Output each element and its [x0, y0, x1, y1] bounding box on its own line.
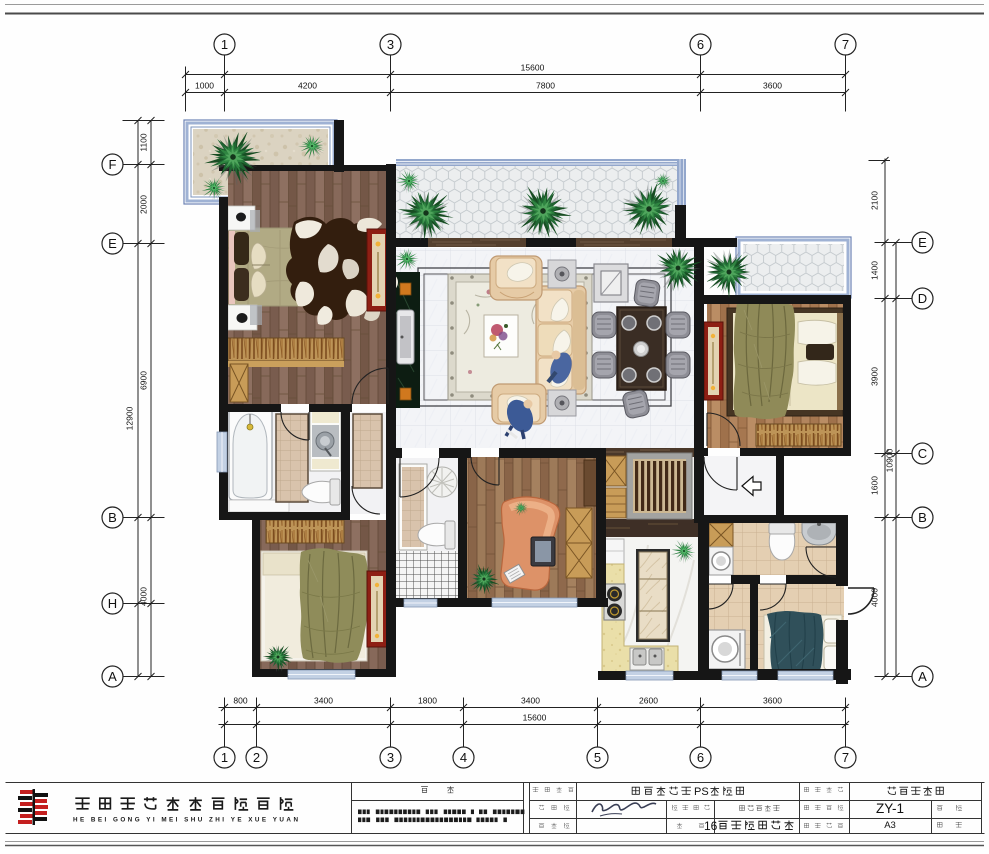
svg-text:800: 800 [233, 696, 247, 706]
svg-text:1600: 1600 [870, 476, 880, 495]
svg-text:6: 6 [697, 750, 704, 765]
svg-text:3400: 3400 [521, 696, 540, 706]
svg-text:3900: 3900 [870, 367, 880, 386]
svg-text:3600: 3600 [763, 81, 782, 91]
svg-text:15600: 15600 [521, 63, 545, 73]
svg-text:1100: 1100 [139, 133, 149, 152]
svg-text:2000: 2000 [139, 195, 149, 214]
svg-text:1000: 1000 [195, 81, 214, 91]
svg-text:ZY-1: ZY-1 [876, 801, 904, 816]
svg-text:A3: A3 [884, 820, 896, 831]
svg-text:PS: PS [694, 786, 709, 798]
svg-text:3: 3 [387, 750, 394, 765]
svg-text:5: 5 [594, 750, 601, 765]
svg-text:3: 3 [387, 37, 394, 52]
svg-text:2100: 2100 [870, 191, 880, 210]
svg-text:1400: 1400 [870, 261, 880, 280]
svg-text:E: E [918, 235, 927, 250]
svg-text:3400: 3400 [314, 696, 333, 706]
svg-text:2600: 2600 [639, 696, 658, 706]
svg-text:7: 7 [842, 37, 849, 52]
svg-text:6: 6 [697, 37, 704, 52]
svg-text:4: 4 [460, 750, 467, 765]
svg-text:16: 16 [704, 819, 718, 833]
svg-text:6900: 6900 [139, 371, 149, 390]
svg-text:A: A [108, 669, 117, 684]
svg-text:3600: 3600 [763, 696, 782, 706]
svg-text:1800: 1800 [418, 696, 437, 706]
svg-text:H: H [108, 596, 117, 611]
svg-text:B: B [918, 510, 927, 525]
svg-text:12900: 12900 [125, 406, 135, 430]
svg-text:10900: 10900 [885, 448, 895, 472]
svg-text:D: D [918, 291, 927, 306]
svg-text:1: 1 [221, 750, 228, 765]
svg-text:C: C [918, 446, 927, 461]
svg-text:7: 7 [842, 750, 849, 765]
svg-text:4000: 4000 [139, 587, 149, 606]
svg-text:1: 1 [221, 37, 228, 52]
svg-text:B: B [108, 510, 117, 525]
svg-text:E: E [108, 236, 117, 251]
svg-text:2: 2 [253, 750, 260, 765]
svg-text:A: A [918, 669, 927, 684]
svg-text:4200: 4200 [298, 81, 317, 91]
svg-text:F: F [109, 157, 117, 172]
svg-text:7800: 7800 [536, 81, 555, 91]
svg-text:15600: 15600 [523, 713, 547, 723]
